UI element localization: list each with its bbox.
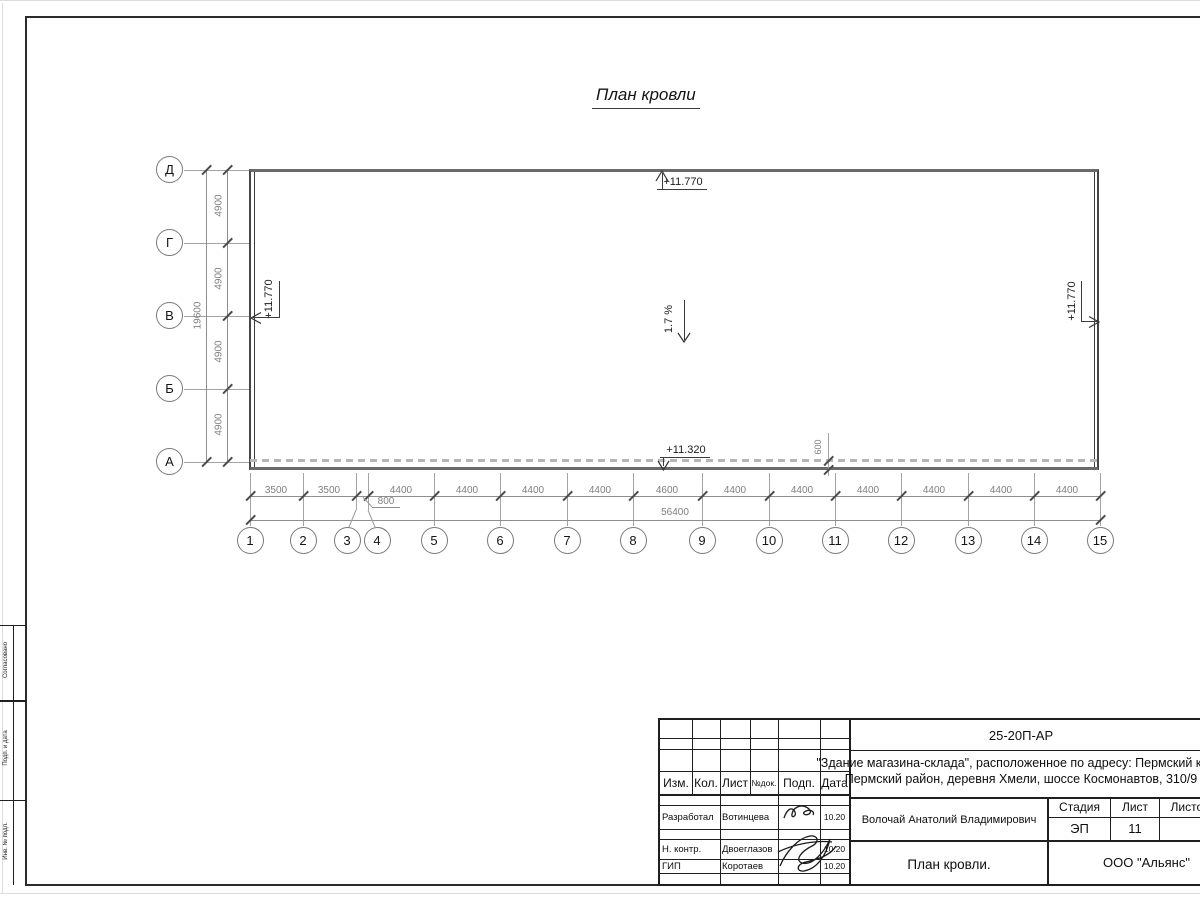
- dim-800-underline: [372, 507, 400, 508]
- dim-value: 4400: [503, 485, 563, 496]
- margin-stamp-inv-no: Инв. № подл.: [3, 801, 9, 881]
- tb-col-ndok: №док.: [750, 771, 778, 794]
- tb-col-kol: Кол.: [692, 771, 720, 794]
- dim-value: 4400: [772, 485, 832, 496]
- dim-value-small: 800: [372, 496, 400, 507]
- tb-role-gip: ГИП: [662, 859, 720, 873]
- axis-extension: [769, 473, 770, 526]
- axis-extension: [633, 473, 634, 526]
- tb-grid-line: [778, 720, 779, 886]
- axis-bubble-11: 11: [822, 527, 849, 554]
- axis-bubble-6: 6: [487, 527, 514, 554]
- axis-bubble-7: 7: [554, 527, 581, 554]
- tb-sheet-value: 11: [1111, 817, 1159, 840]
- axis-extension: [368, 473, 369, 510]
- tb-grid-line: [849, 750, 1200, 751]
- tb-name-developed: Вотинцева: [722, 805, 778, 829]
- axis-extension: [901, 473, 902, 526]
- axis-label: 15: [1093, 533, 1107, 548]
- elev-bottom-leader: [663, 457, 664, 466]
- axis-bubble-b: Б: [156, 375, 183, 402]
- tb-sheet-label: Лист: [1111, 797, 1159, 817]
- axis-bubble-v: В: [156, 302, 183, 329]
- dim-value: 4400: [371, 485, 431, 496]
- slope-arrow-line: [684, 300, 685, 340]
- tb-project-line2: Пермский район, деревня Хмели, шоссе Кос…: [851, 770, 1191, 787]
- dim-line-vertical-total: [206, 170, 207, 462]
- tb-grid-line: [660, 749, 849, 750]
- tb-col-podp: Подп.: [778, 771, 820, 794]
- axis-label: 4: [373, 533, 380, 548]
- axis-bubble-9: 9: [689, 527, 716, 554]
- axis-3-bent-leader: [349, 510, 356, 527]
- dim-value: 4400: [904, 485, 964, 496]
- dim-value: 4900: [214, 257, 225, 301]
- axis-4-bent-leader: [368, 510, 375, 527]
- tb-stage-label: Стадия: [1049, 797, 1110, 817]
- dim-value: 4400: [971, 485, 1031, 496]
- tb-drawing-name: План кровли.: [851, 842, 1047, 886]
- elev-right-value: +11.770: [1066, 277, 1078, 325]
- axis-label: 6: [496, 533, 503, 548]
- axis-bubble-3: 3: [334, 527, 361, 554]
- tb-grid-line: [660, 794, 849, 796]
- axis-bubble-15: 15: [1087, 527, 1114, 554]
- tb-name-ncontr: Двоеглазов: [722, 839, 778, 859]
- axis-label: 12: [894, 533, 908, 548]
- axis-bubble-g: Г: [156, 229, 183, 256]
- axis-label: 11: [828, 533, 842, 548]
- axis-bubble-2: 2: [290, 527, 317, 554]
- roof-inner-line-left: [254, 172, 255, 467]
- axis-extension: [184, 243, 249, 244]
- dim-value: 4400: [437, 485, 497, 496]
- roof-inner-line-right: [1094, 172, 1095, 467]
- axis-extension: [184, 170, 249, 171]
- drawing-sheet: { "drawing_title": "План кровли", "plan"…: [0, 0, 1200, 900]
- elev-top-value: +11.770: [659, 176, 707, 188]
- drawing-title: План кровли: [592, 85, 700, 109]
- axis-label: 8: [629, 533, 636, 548]
- axis-bubble-a: А: [156, 448, 183, 475]
- axis-extension: [702, 473, 703, 526]
- axis-bubble-12: 12: [888, 527, 915, 554]
- axis-bubble-5: 5: [421, 527, 448, 554]
- frame-left: [25, 16, 27, 886]
- tb-doc-code: 25-20П-АР: [851, 720, 1191, 750]
- axis-label: 5: [430, 533, 437, 548]
- axis-label: 7: [563, 533, 570, 548]
- dim-value-total-width: 56400: [645, 507, 705, 518]
- axis-bubble-d: Д: [156, 156, 183, 183]
- title-block: Изм. Кол. Лист №док. Подп. Дата Разработ…: [658, 718, 1200, 886]
- frame-top: [25, 16, 1200, 18]
- elev-bottom-value: +11.320: [662, 444, 710, 456]
- tb-role-ncontr: Н. контр.: [662, 839, 720, 859]
- axis-extension: [567, 473, 568, 526]
- roof-eaves-dashed-line: [250, 459, 1100, 462]
- dim-line-horizontal-total: [250, 520, 1100, 521]
- tb-stage-value: ЭП: [1049, 817, 1110, 840]
- dim-value: 4400: [838, 485, 898, 496]
- tb-sheets-label: Листов: [1160, 797, 1200, 817]
- axis-extension: [434, 473, 435, 526]
- axis-bubble-10: 10: [756, 527, 783, 554]
- margin-stamp-approved: Согласовано: [3, 620, 9, 700]
- tb-company: ООО "Альянс": [1049, 846, 1200, 878]
- axis-bubble-13: 13: [955, 527, 982, 554]
- tb-grid-line: [720, 720, 721, 886]
- tb-author: Волочай Анатолий Владимирович: [851, 799, 1047, 840]
- tb-project-line1: "Здание магазина-склада", расположенное …: [851, 754, 1191, 771]
- axis-extension: [1034, 473, 1035, 526]
- axis-label: 9: [698, 533, 705, 548]
- tb-col-list: Лист: [720, 771, 750, 794]
- paper-edge-top: [0, 0, 1200, 1]
- dim-value: 4400: [570, 485, 630, 496]
- tb-grid-line: [660, 738, 849, 739]
- elev-left-underline: [279, 281, 280, 318]
- tb-date-developed: 10.20: [820, 805, 849, 829]
- dim-value: 3500: [246, 485, 306, 496]
- axis-extension: [500, 473, 501, 526]
- dim-value: 4900: [214, 403, 225, 447]
- dim-value: 4400: [705, 485, 765, 496]
- axis-label: Б: [165, 381, 174, 396]
- tb-grid-line: [660, 873, 849, 874]
- margin-stamp-sign-date: Подп. и дата: [3, 708, 9, 788]
- axis-label: 13: [961, 533, 975, 548]
- dim-value: 4900: [214, 184, 225, 228]
- elev-right-leader: [1081, 321, 1098, 322]
- dim-value: 4400: [1037, 485, 1097, 496]
- dim-value: 4900: [214, 330, 225, 374]
- slope-value: 1.7 %: [663, 298, 675, 340]
- tb-name-gip: Коротаев: [722, 859, 778, 873]
- axis-label: В: [165, 308, 174, 323]
- axis-label: 2: [299, 533, 306, 548]
- axis-label: 10: [762, 533, 776, 548]
- tb-col-izm: Изм.: [660, 771, 692, 794]
- axis-label: А: [165, 454, 174, 469]
- axis-label: Д: [165, 162, 174, 177]
- paper-edge-bottom: [0, 893, 1200, 894]
- axis-label: 1: [246, 533, 253, 548]
- axis-bubble-4: 4: [364, 527, 391, 554]
- axis-bubble-8: 8: [620, 527, 647, 554]
- elev-top-underline: [657, 189, 707, 190]
- dim-value-total-height: 19600: [193, 294, 204, 338]
- elev-left-value: +11.770: [263, 275, 275, 323]
- margin-line-vertical: [13, 625, 14, 885]
- axis-extension: [184, 462, 249, 463]
- tb-role-developed: Разработал: [662, 805, 720, 829]
- axis-extension: [835, 473, 836, 526]
- axis-label: 3: [343, 533, 350, 548]
- dim-value: 3500: [299, 485, 359, 496]
- tb-grid-line: [660, 829, 849, 830]
- axis-label: Г: [166, 235, 173, 250]
- elev-right-underline: [1081, 281, 1082, 322]
- tb-date-gip: 10.20: [820, 859, 849, 873]
- axis-extension: [303, 473, 304, 526]
- axis-extension: [184, 389, 249, 390]
- axis-label: 14: [1027, 533, 1041, 548]
- axis-extension: [968, 473, 969, 526]
- axis-bubble-1: 1: [237, 527, 264, 554]
- overhang-dim-value: 600: [813, 432, 823, 462]
- tb-date-ncontr: 10.20: [820, 839, 849, 859]
- dim-value: 4600: [637, 485, 697, 496]
- elev-bottom-underline: [660, 457, 710, 458]
- axis-bubble-14: 14: [1021, 527, 1048, 554]
